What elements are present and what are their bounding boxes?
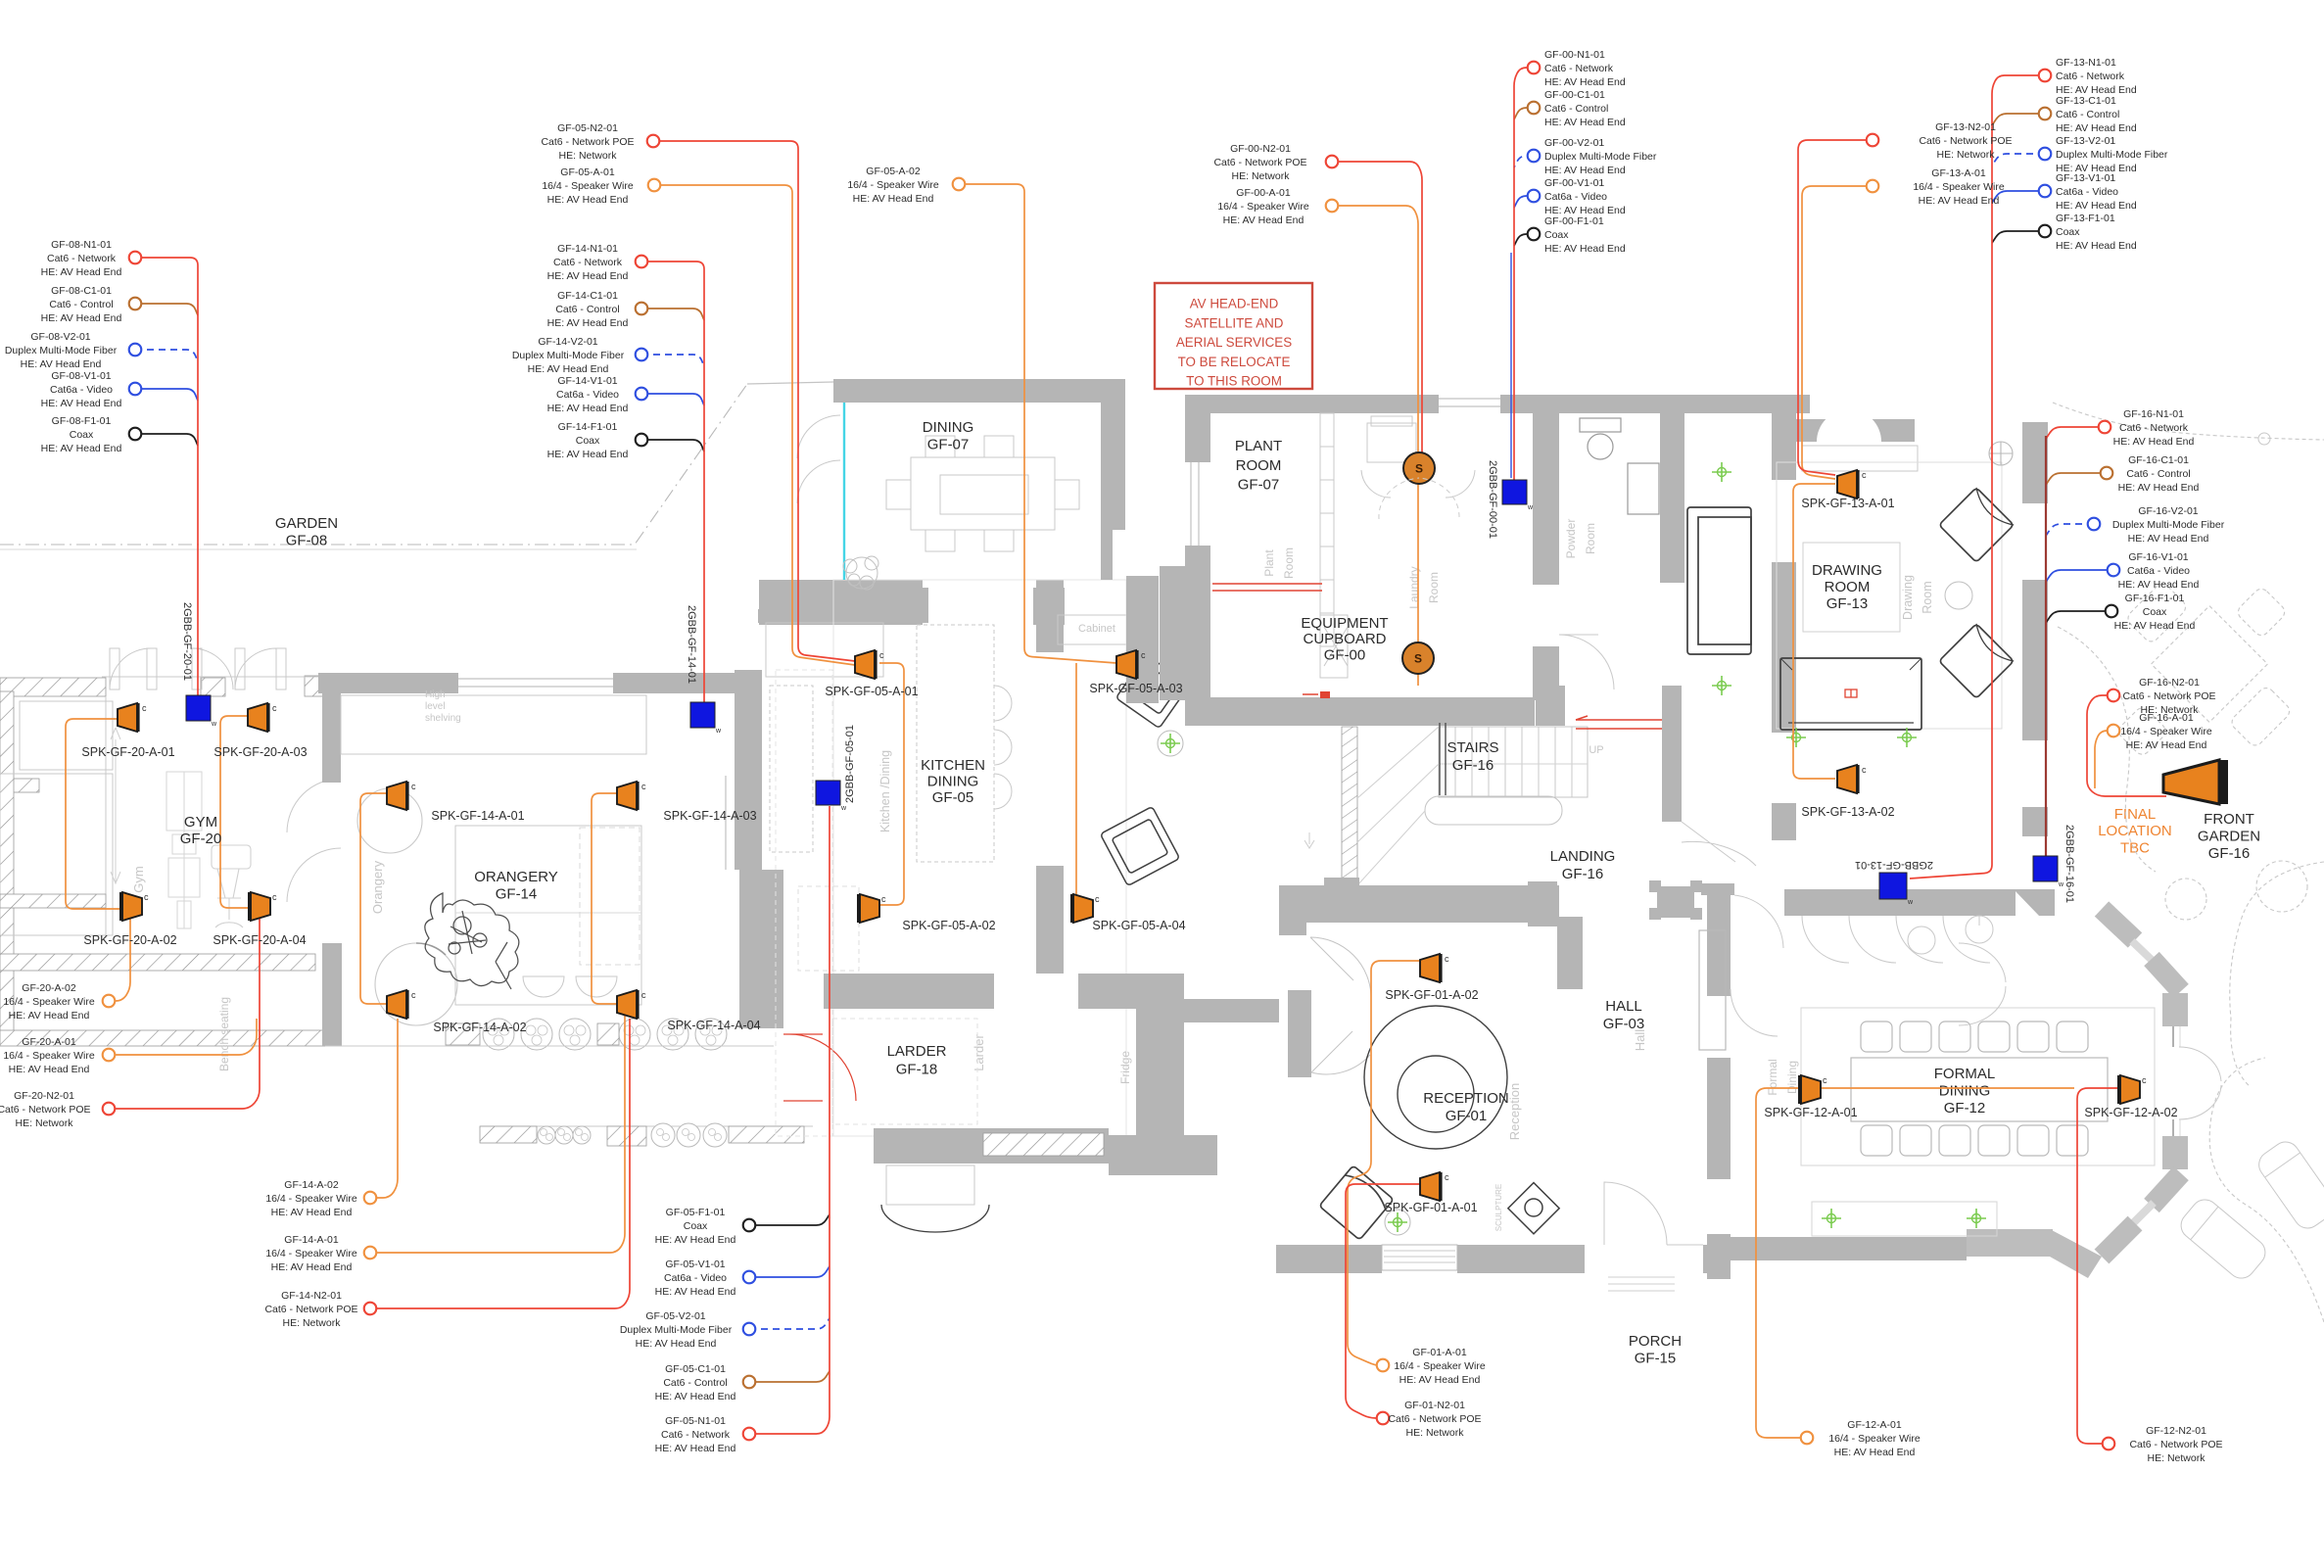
svg-text:GF-16: GF-16 — [2208, 845, 2251, 862]
svg-text:HE: AV Head End: HE: AV Head End — [1544, 205, 1626, 216]
svg-text:2GBB-GF-20-01: 2GBB-GF-20-01 — [181, 602, 193, 681]
svg-text:Duplex Multi-Mode Fiber: Duplex Multi-Mode Fiber — [2056, 149, 2168, 161]
svg-text:STAIRS: STAIRS — [1447, 739, 1498, 756]
svg-text:SPK-GF-12-A-01: SPK-GF-12-A-01 — [1764, 1106, 1857, 1119]
svg-text:PORCH: PORCH — [1629, 1333, 1682, 1350]
svg-text:Dining: Dining — [1785, 1061, 1799, 1094]
svg-text:GF-01: GF-01 — [1446, 1108, 1488, 1124]
svg-text:HE: AV Head End: HE: AV Head End — [9, 1064, 90, 1075]
svg-text:Coax: Coax — [70, 429, 94, 441]
svg-text:GF-05: GF-05 — [932, 789, 974, 806]
svg-text:Coax: Coax — [2056, 226, 2080, 238]
svg-text:Cat6 - Network POE: Cat6 - Network POE — [0, 1104, 91, 1116]
svg-text:GF-16: GF-16 — [1562, 866, 1604, 882]
svg-text:Room: Room — [1921, 581, 1934, 613]
svg-text:GF-14-A-02: GF-14-A-02 — [284, 1179, 339, 1191]
svg-text:Duplex Multi-Mode Fiber: Duplex Multi-Mode Fiber — [2112, 519, 2225, 531]
svg-text:Drawing: Drawing — [1901, 575, 1915, 620]
svg-text:Formal: Formal — [1766, 1059, 1779, 1095]
svg-text:c: c — [641, 782, 646, 791]
svg-text:HE: Network: HE: Network — [559, 150, 618, 162]
svg-text:GF-05-N2-01: GF-05-N2-01 — [557, 122, 618, 134]
svg-text:c: c — [142, 703, 147, 713]
svg-text:HE: AV Head End: HE: AV Head End — [2056, 84, 2137, 96]
svg-text:GF-08-F1-01: GF-08-F1-01 — [52, 415, 112, 427]
svg-text:GF-13-V1-01: GF-13-V1-01 — [2056, 172, 2115, 184]
svg-text:w: w — [840, 805, 847, 812]
svg-text:HE: Network: HE: Network — [16, 1117, 74, 1129]
svg-text:SPK-GF-20-A-03: SPK-GF-20-A-03 — [213, 745, 307, 759]
svg-text:Laundry: Laundry — [1407, 566, 1421, 608]
svg-text:SPK-GF-01-A-01: SPK-GF-01-A-01 — [1384, 1201, 1477, 1214]
svg-text:GF-13-A-01: GF-13-A-01 — [1931, 167, 1986, 179]
svg-text:w: w — [211, 721, 217, 728]
svg-text:SPK-GF-05-A-03: SPK-GF-05-A-03 — [1089, 682, 1182, 695]
svg-text:Cat6a - Video: Cat6a - Video — [2056, 186, 2118, 198]
svg-text:PLANT: PLANT — [1235, 438, 1282, 454]
svg-text:HE: AV Head End: HE: AV Head End — [41, 266, 122, 278]
svg-text:GF-14-C1-01: GF-14-C1-01 — [557, 290, 618, 302]
svg-text:SPK-GF-05-A-02: SPK-GF-05-A-02 — [902, 919, 995, 932]
svg-text:GF-12-A-01: GF-12-A-01 — [1847, 1419, 1902, 1431]
svg-text:SPK-GF-12-A-02: SPK-GF-12-A-02 — [2084, 1106, 2177, 1119]
svg-text:GF-12: GF-12 — [1944, 1100, 1986, 1117]
svg-text:GF-15: GF-15 — [1635, 1351, 1677, 1367]
svg-text:c: c — [1445, 1172, 1449, 1182]
svg-text:Powder: Powder — [1564, 519, 1578, 559]
svg-text:HE: AV Head End: HE: AV Head End — [1834, 1447, 1916, 1458]
svg-text:GF-20: GF-20 — [180, 831, 222, 847]
svg-text:w: w — [715, 728, 722, 735]
svg-text:GF-16-V1-01: GF-16-V1-01 — [2128, 551, 2188, 563]
svg-text:SPK-GF-14-A-03: SPK-GF-14-A-03 — [663, 809, 756, 823]
svg-text:DINING: DINING — [927, 774, 979, 790]
svg-text:HE: AV Head End: HE: AV Head End — [655, 1391, 736, 1402]
svg-text:c: c — [272, 892, 277, 902]
svg-text:GF-00-F1-01: GF-00-F1-01 — [1544, 215, 1604, 227]
svg-text:GF-16-N1-01: GF-16-N1-01 — [2123, 408, 2184, 420]
svg-text:c: c — [411, 990, 416, 1000]
svg-text:level: level — [425, 701, 446, 712]
svg-text:HE: AV Head End: HE: AV Head End — [547, 403, 629, 414]
svg-text:Cat6 - Network POE: Cat6 - Network POE — [1919, 135, 2012, 147]
svg-text:SPK-GF-20-A-01: SPK-GF-20-A-01 — [81, 745, 174, 759]
svg-text:w: w — [2058, 881, 2064, 888]
svg-text:Cat6 - Network POE: Cat6 - Network POE — [541, 136, 634, 148]
svg-text:GF-13-C1-01: GF-13-C1-01 — [2056, 95, 2116, 107]
svg-text:SPK-GF-14-A-02: SPK-GF-14-A-02 — [433, 1021, 526, 1034]
svg-text:Gym: Gym — [131, 866, 146, 892]
svg-text:GF-00-A-01: GF-00-A-01 — [1236, 187, 1291, 199]
svg-text:2GBB-GF-14-01: 2GBB-GF-14-01 — [686, 605, 697, 684]
svg-text:GARDEN: GARDEN — [2198, 829, 2260, 845]
svg-text:HE: AV Head End: HE: AV Head End — [655, 1443, 736, 1454]
svg-text:EQUIPMENT: EQUIPMENT — [1301, 615, 1388, 632]
svg-text:c: c — [411, 782, 416, 791]
svg-text:DINING: DINING — [1939, 1083, 1991, 1100]
svg-text:16/4 - Speaker Wire: 16/4 - Speaker Wire — [1913, 181, 2005, 193]
svg-text:2GBB-GF-00-01: 2GBB-GF-00-01 — [1487, 460, 1498, 539]
svg-text:DINING: DINING — [923, 419, 974, 436]
svg-text:Coax: Coax — [2143, 606, 2167, 618]
svg-text:GF-16: GF-16 — [1452, 757, 1494, 774]
svg-text:c: c — [144, 892, 149, 902]
svg-text:S: S — [1414, 652, 1422, 666]
svg-text:HE: AV Head End: HE: AV Head End — [41, 312, 122, 324]
svg-text:Cat6a - Video: Cat6a - Video — [1544, 191, 1607, 203]
svg-text:GF-05-F1-01: GF-05-F1-01 — [666, 1207, 726, 1218]
svg-text:Room: Room — [1427, 572, 1441, 603]
svg-text:c: c — [1141, 650, 1146, 660]
svg-text:Reception: Reception — [1507, 1083, 1522, 1141]
svg-text:FORMAL: FORMAL — [1934, 1066, 1996, 1082]
svg-text:Cabinet: Cabinet — [1078, 623, 1115, 635]
svg-text:HE: AV Head End: HE: AV Head End — [655, 1234, 736, 1246]
svg-text:Cat6a - Video: Cat6a - Video — [50, 384, 113, 396]
svg-text:Cat6 - Control: Cat6 - Control — [663, 1377, 727, 1389]
svg-text:UP: UP — [1589, 744, 1603, 756]
svg-text:HE: AV Head End: HE: AV Head End — [21, 358, 102, 370]
svg-text:HE: AV Head End: HE: AV Head End — [853, 193, 934, 205]
svg-text:GF-16-F1-01: GF-16-F1-01 — [2125, 593, 2185, 604]
svg-text:SCULPTURE: SCULPTURE — [1494, 1184, 1503, 1231]
svg-text:c: c — [1095, 894, 1100, 904]
svg-text:Orangery: Orangery — [370, 860, 385, 914]
svg-text:GF-08-V1-01: GF-08-V1-01 — [51, 370, 111, 382]
svg-text:HE: AV Head End: HE: AV Head End — [547, 317, 629, 329]
svg-text:Cat6 - Network: Cat6 - Network — [2119, 422, 2189, 434]
svg-text:HE: AV Head End: HE: AV Head End — [2118, 482, 2200, 494]
svg-text:16/4 - Speaker Wire: 16/4 - Speaker Wire — [2120, 726, 2212, 737]
svg-text:Duplex Multi-Mode Fiber: Duplex Multi-Mode Fiber — [620, 1324, 733, 1336]
svg-text:Coax: Coax — [1544, 229, 1569, 241]
svg-text:2GBB-GF-16-01: 2GBB-GF-16-01 — [2063, 825, 2075, 903]
svg-text:c: c — [641, 990, 646, 1000]
svg-text:FRONT: FRONT — [2204, 811, 2254, 828]
svg-text:GF-12-N2-01: GF-12-N2-01 — [2146, 1425, 2206, 1437]
svg-text:HE: AV Head End: HE: AV Head End — [1919, 195, 2000, 207]
svg-text:GF-13-F1-01: GF-13-F1-01 — [2056, 213, 2115, 224]
svg-text:HE: AV Head End: HE: AV Head End — [1544, 165, 1626, 176]
svg-text:HE: AV Head End: HE: AV Head End — [41, 398, 122, 409]
svg-text:GF-03: GF-03 — [1603, 1016, 1645, 1032]
svg-text:SPK-GF-01-A-02: SPK-GF-01-A-02 — [1385, 988, 1478, 1002]
svg-text:Cat6 - Control: Cat6 - Control — [1544, 103, 1608, 115]
svg-text:16/4 - Speaker Wire: 16/4 - Speaker Wire — [3, 996, 95, 1008]
svg-text:GF-14-F1-01: GF-14-F1-01 — [558, 421, 618, 433]
svg-text:Cat6a - Video: Cat6a - Video — [664, 1272, 727, 1284]
svg-text:c: c — [1823, 1075, 1827, 1085]
svg-text:GF-14-N1-01: GF-14-N1-01 — [557, 243, 618, 255]
svg-text:16/4 - Speaker Wire: 16/4 - Speaker Wire — [265, 1248, 357, 1259]
svg-text:SPK-GF-05-A-04: SPK-GF-05-A-04 — [1092, 919, 1185, 932]
svg-text:RECEPTION: RECEPTION — [1423, 1090, 1509, 1107]
svg-text:GF-14-N2-01: GF-14-N2-01 — [281, 1290, 342, 1302]
svg-text:GF-14: GF-14 — [496, 886, 538, 903]
svg-text:HE: Network: HE: Network — [1232, 170, 1291, 182]
svg-text:LANDING: LANDING — [1550, 848, 1616, 865]
svg-text:SPK-GF-20-A-04: SPK-GF-20-A-04 — [213, 933, 306, 947]
svg-text:Fridge: Fridge — [1118, 1051, 1132, 1084]
svg-text:Larder: Larder — [972, 1034, 986, 1071]
svg-text:GF-00-N1-01: GF-00-N1-01 — [1544, 49, 1605, 61]
svg-text:16/4 - Speaker Wire: 16/4 - Speaker Wire — [1828, 1433, 1921, 1445]
svg-text:GYM: GYM — [184, 814, 217, 831]
svg-text:HE: AV Head End: HE: AV Head End — [271, 1261, 353, 1273]
svg-text:SPK-GF-20-A-02: SPK-GF-20-A-02 — [83, 933, 176, 947]
svg-text:HE: AV Head End: HE: AV Head End — [2113, 436, 2195, 448]
svg-text:GF-16-A-01: GF-16-A-01 — [2139, 712, 2194, 724]
svg-text:GF-13-N1-01: GF-13-N1-01 — [2056, 57, 2116, 69]
svg-text:16/4 - Speaker Wire: 16/4 - Speaker Wire — [847, 179, 939, 191]
svg-text:HE: Network: HE: Network — [1406, 1427, 1465, 1439]
svg-text:Cat6 - Network POE: Cat6 - Network POE — [1213, 157, 1306, 168]
svg-text:Duplex Multi-Mode Fiber: Duplex Multi-Mode Fiber — [5, 345, 118, 356]
svg-text:GF-00: GF-00 — [1324, 646, 1366, 663]
svg-text:16/4 - Speaker Wire: 16/4 - Speaker Wire — [1394, 1360, 1486, 1372]
svg-text:DRAWING: DRAWING — [1812, 562, 1882, 579]
svg-text:16/4 - Speaker Wire: 16/4 - Speaker Wire — [3, 1050, 95, 1062]
svg-text:GF-20-A-02: GF-20-A-02 — [22, 982, 76, 994]
svg-text:HE: AV Head End: HE: AV Head End — [547, 194, 629, 206]
svg-text:GF-00-N2-01: GF-00-N2-01 — [1230, 143, 1291, 155]
svg-text:GF-14-A-01: GF-14-A-01 — [284, 1234, 339, 1246]
svg-text:Plant: Plant — [1262, 549, 1276, 577]
svg-text:GF-20-N2-01: GF-20-N2-01 — [14, 1090, 74, 1102]
svg-text:HE: AV Head End: HE: AV Head End — [636, 1338, 717, 1350]
svg-text:c: c — [881, 894, 886, 904]
svg-text:HE: Network: HE: Network — [283, 1317, 342, 1329]
svg-text:SATELLITE AND: SATELLITE AND — [1185, 315, 1284, 330]
svg-text:Duplex Multi-Mode Fiber: Duplex Multi-Mode Fiber — [512, 350, 625, 361]
svg-text:c: c — [272, 703, 277, 713]
svg-text:Cat6a - Video: Cat6a - Video — [2127, 565, 2190, 577]
svg-text:GF-05-V2-01: GF-05-V2-01 — [645, 1310, 705, 1322]
svg-text:GF-07: GF-07 — [927, 437, 970, 453]
svg-text:GF-20-A-01: GF-20-A-01 — [22, 1036, 76, 1048]
svg-text:c: c — [1862, 470, 1867, 480]
svg-text:ORANGERY: ORANGERY — [474, 869, 558, 885]
svg-text:GF-16-C1-01: GF-16-C1-01 — [2128, 454, 2189, 466]
svg-text:16/4 - Speaker Wire: 16/4 - Speaker Wire — [542, 180, 634, 192]
svg-text:Duplex Multi-Mode Fiber: Duplex Multi-Mode Fiber — [1544, 151, 1657, 163]
svg-text:GF-08: GF-08 — [286, 533, 328, 549]
svg-text:Cat6 - Network: Cat6 - Network — [2056, 71, 2125, 82]
svg-text:TO BE RELOCATE: TO BE RELOCATE — [1178, 355, 1291, 369]
svg-text:LOCATION: LOCATION — [2098, 823, 2172, 839]
svg-text:GF-08-C1-01: GF-08-C1-01 — [51, 285, 112, 297]
svg-text:Room: Room — [1282, 547, 1296, 579]
svg-text:GF-18: GF-18 — [896, 1062, 938, 1078]
svg-text:Cat6 - Network: Cat6 - Network — [47, 253, 117, 264]
svg-text:GF-13-V2-01: GF-13-V2-01 — [2056, 135, 2115, 147]
svg-text:TO THIS ROOM: TO THIS ROOM — [1186, 374, 1282, 389]
svg-text:KITCHEN: KITCHEN — [921, 757, 985, 774]
svg-text:HE: AV Head End: HE: AV Head End — [547, 270, 629, 282]
svg-text:GF-00-V1-01: GF-00-V1-01 — [1544, 177, 1604, 189]
svg-text:GF-01-A-01: GF-01-A-01 — [1412, 1347, 1467, 1358]
svg-text:Cat6 - Control: Cat6 - Control — [555, 304, 619, 315]
svg-text:AERIAL SERVICES: AERIAL SERVICES — [1176, 335, 1292, 350]
svg-text:16/4 - Speaker Wire: 16/4 - Speaker Wire — [265, 1193, 357, 1205]
svg-text:CUPBOARD: CUPBOARD — [1303, 631, 1386, 647]
svg-text:GF-05-A-02: GF-05-A-02 — [866, 166, 921, 177]
svg-text:w: w — [1907, 899, 1914, 906]
svg-text:FINAL: FINAL — [2114, 806, 2157, 823]
svg-text:Cat6 - Network: Cat6 - Network — [553, 257, 623, 268]
svg-text:HE: AV Head End: HE: AV Head End — [1399, 1374, 1481, 1386]
svg-text:HE: AV Head End: HE: AV Head End — [2056, 240, 2137, 252]
svg-text:GF-05-C1-01: GF-05-C1-01 — [665, 1363, 726, 1375]
svg-text:2GBB-GF-13-01: 2GBB-GF-13-01 — [1855, 859, 1933, 871]
svg-text:2GBB-GF-05-01: 2GBB-GF-05-01 — [844, 725, 856, 803]
svg-text:HE: AV Head End: HE: AV Head End — [2118, 579, 2200, 591]
svg-text:HE: AV Head End: HE: AV Head End — [271, 1207, 353, 1218]
svg-text:LARDER: LARDER — [887, 1043, 947, 1060]
svg-text:c: c — [1862, 765, 1867, 775]
svg-text:HE: AV Head End: HE: AV Head End — [547, 449, 629, 460]
svg-text:SPK-GF-14-A-01: SPK-GF-14-A-01 — [431, 809, 524, 823]
svg-text:GF-01-N2-01: GF-01-N2-01 — [1404, 1400, 1465, 1411]
svg-text:HE: AV Head End: HE: AV Head End — [41, 443, 122, 454]
svg-text:HE: AV Head End: HE: AV Head End — [1544, 243, 1626, 255]
svg-text:ROOM: ROOM — [1825, 579, 1871, 595]
svg-text:HE: AV Head End: HE: AV Head End — [655, 1286, 736, 1298]
svg-text:HE: AV Head End: HE: AV Head End — [2126, 739, 2207, 751]
svg-text:c: c — [1445, 954, 1449, 964]
svg-text:HE: AV Head End: HE: AV Head End — [1544, 76, 1626, 88]
svg-text:HALL: HALL — [1605, 998, 1642, 1015]
svg-text:GF-14-V1-01: GF-14-V1-01 — [557, 375, 617, 387]
svg-text:GF-13-N2-01: GF-13-N2-01 — [1935, 121, 1996, 133]
svg-text:Cat6 - Network: Cat6 - Network — [1544, 63, 1614, 74]
svg-text:w: w — [1527, 504, 1534, 511]
svg-text:SPK-GF-14-A-04: SPK-GF-14-A-04 — [667, 1019, 760, 1032]
svg-text:Cat6 - Network: Cat6 - Network — [661, 1429, 731, 1441]
svg-text:ROOM: ROOM — [1236, 457, 1282, 474]
svg-text:Cat6 - Network POE: Cat6 - Network POE — [1388, 1413, 1481, 1425]
svg-text:HE: AV Head End: HE: AV Head End — [2128, 533, 2209, 545]
svg-text:GF-13: GF-13 — [1826, 595, 1869, 612]
svg-text:GF-05-N1-01: GF-05-N1-01 — [665, 1415, 726, 1427]
svg-text:Cat6a - Video: Cat6a - Video — [556, 389, 619, 401]
svg-text:HE: AV Head End: HE: AV Head End — [528, 363, 609, 375]
svg-text:SPK-GF-05-A-01: SPK-GF-05-A-01 — [825, 685, 918, 698]
svg-text:GF-05-A-01: GF-05-A-01 — [560, 166, 615, 178]
svg-text:Cat6 - Control: Cat6 - Control — [2056, 109, 2119, 120]
svg-text:GF-14-V2-01: GF-14-V2-01 — [538, 336, 597, 348]
svg-text:Bench seating: Bench seating — [217, 997, 231, 1071]
svg-text:GF-00-C1-01: GF-00-C1-01 — [1544, 89, 1605, 101]
svg-text:Cat6 - Network POE: Cat6 - Network POE — [2129, 1439, 2222, 1450]
svg-text:SPK-GF-13-A-01: SPK-GF-13-A-01 — [1801, 497, 1894, 510]
svg-text:HE: AV Head End: HE: AV Head End — [2114, 620, 2196, 632]
svg-text:Cat6 - Control: Cat6 - Control — [2126, 468, 2190, 480]
svg-text:AV HEAD-END: AV HEAD-END — [1190, 297, 1279, 311]
svg-text:GF-08-V2-01: GF-08-V2-01 — [30, 331, 90, 343]
svg-text:Cat6 - Control: Cat6 - Control — [49, 299, 113, 310]
svg-text:c: c — [879, 650, 884, 660]
svg-text:HE: AV Head End: HE: AV Head End — [2056, 200, 2137, 212]
svg-text:GF-08-N1-01: GF-08-N1-01 — [51, 239, 112, 251]
svg-text:HE: AV Head End: HE: AV Head End — [2056, 122, 2137, 134]
svg-text:SPK-GF-13-A-02: SPK-GF-13-A-02 — [1801, 805, 1894, 819]
svg-text:c: c — [2142, 1075, 2147, 1085]
svg-text:Cat6 - Network POE: Cat6 - Network POE — [2122, 690, 2215, 702]
svg-text:GF-16-V2-01: GF-16-V2-01 — [2138, 505, 2198, 517]
svg-text:Coax: Coax — [684, 1220, 708, 1232]
svg-text:GF-07: GF-07 — [1238, 477, 1280, 494]
svg-text:16/4 - Speaker Wire: 16/4 - Speaker Wire — [1217, 201, 1309, 213]
svg-text:GARDEN: GARDEN — [275, 515, 338, 532]
svg-text:TBC: TBC — [2120, 839, 2150, 856]
svg-text:GF-00-V2-01: GF-00-V2-01 — [1544, 137, 1604, 149]
svg-text:HE: Network: HE: Network — [1937, 149, 1996, 161]
svg-text:Coax: Coax — [576, 435, 600, 447]
svg-text:GF-05-V1-01: GF-05-V1-01 — [665, 1259, 725, 1270]
svg-text:shelving: shelving — [425, 713, 461, 724]
svg-text:HE: Network: HE: Network — [2148, 1452, 2206, 1464]
svg-text:HE: AV Head End: HE: AV Head End — [9, 1010, 90, 1022]
svg-text:GF-16-N2-01: GF-16-N2-01 — [2139, 677, 2200, 689]
svg-text:Room: Room — [1584, 523, 1597, 554]
svg-text:HE: AV Head End: HE: AV Head End — [1544, 117, 1626, 128]
svg-text:Cat6 - Network POE: Cat6 - Network POE — [264, 1304, 357, 1315]
svg-text:HE: AV Head End: HE: AV Head End — [1223, 214, 1304, 226]
svg-text:Hall: Hall — [1633, 1029, 1647, 1052]
svg-text:S: S — [1415, 462, 1423, 476]
svg-text:Kitchen /Dining: Kitchen /Dining — [878, 750, 892, 832]
